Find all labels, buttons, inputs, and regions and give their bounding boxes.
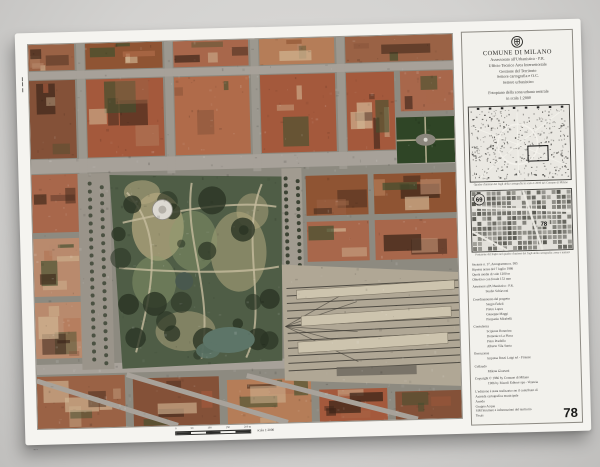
scale-tick-label: 200 m: [244, 426, 251, 429]
info-panel: COMUNE DI MILANO Assessorato all'Urbanis…: [461, 29, 583, 426]
scale-tick-label: 150: [226, 427, 230, 430]
scale-tick-label: 0: [175, 428, 176, 431]
scale-tick-label: 100: [207, 427, 211, 430]
map2-label-78: 78: [540, 222, 547, 228]
index-map-city: [468, 104, 572, 183]
credit-name: Impresa Rossi Luigi srl - Firenze: [487, 354, 576, 361]
copyright-block: Copyright © 1986 by Comune di Milano 198…: [475, 374, 577, 387]
map-subtitle-scale: in scala 1:2000: [468, 94, 570, 102]
scale-ruler: [175, 429, 251, 435]
index-map-sheet-caption: Posizione del foglio nel quadro d'unione…: [474, 251, 572, 257]
photomap-poster: COMUNE DI MILANO Assessorato all'Urbanis…: [15, 19, 592, 446]
index-map-sheet: 6978: [470, 188, 574, 253]
map2-label-69: 69: [476, 198, 483, 204]
credit-group: Consulenza Scipione Bonacina Domenico La…: [473, 322, 576, 349]
scale-text: scala 1:2000: [257, 428, 274, 432]
scale-bar-footer: 0 50 100 150 200 m scala 1:2000: [175, 423, 395, 439]
credit-group: Coordinamento del progetto Sergio Fedeli…: [473, 295, 576, 322]
scale-bar: 0 50 100 150 200 m: [175, 426, 251, 435]
sheet-number: 78: [563, 405, 578, 420]
index-map-city-caption: Quadro d'unione dei fogli della cartogra…: [472, 181, 570, 187]
aerial-photo: [28, 34, 462, 429]
technical-notes: Sezione n. 17, Aerogramma n. 995 Ripresa…: [472, 260, 578, 419]
copyright-line: 1986 by Rizzoli Editore spa - Venezia: [488, 379, 577, 386]
scale-tick-label: 50: [191, 428, 194, 431]
credit-name: Milena Giussani: [488, 367, 577, 374]
credit-name: Studio Schiavoni: [486, 287, 575, 294]
org-line: Settore urbanistico: [467, 78, 569, 86]
print-registration-marks: [33, 437, 41, 439]
margin-marks: [21, 75, 24, 93]
credit-group: Esecuzione Impresa Rossi Luigi srl - Fir…: [474, 349, 576, 362]
credit-group: Assessore all'Urbanistica - P.R. Studio …: [472, 282, 574, 295]
credit-group: Collaudo Milena Giussani: [475, 362, 577, 375]
milan-crest-icon: [511, 35, 523, 48]
aerial-photo-canvas: [28, 34, 462, 429]
